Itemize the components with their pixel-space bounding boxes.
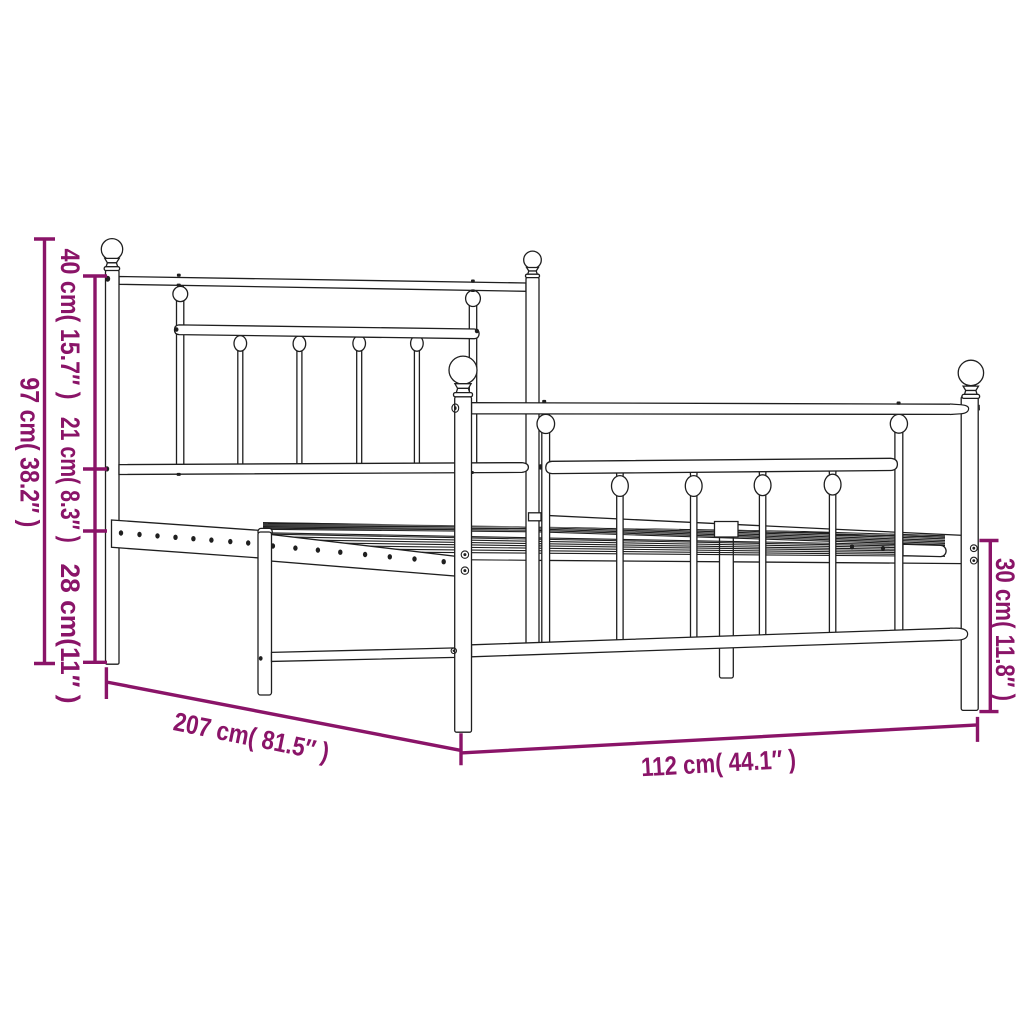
- svg-text:21 cm( 8.3″ ): 21 cm( 8.3″ ): [55, 417, 85, 543]
- svg-text:40 cm( 15.7″ ): 40 cm( 15.7″ ): [55, 249, 85, 400]
- svg-text:97 cm( 38.2″ ): 97 cm( 38.2″ ): [15, 377, 45, 527]
- svg-text:30 cm( 11.8″ ): 30 cm( 11.8″ ): [990, 558, 1020, 701]
- svg-text:28 cm(11″ ): 28 cm(11″ ): [55, 564, 85, 704]
